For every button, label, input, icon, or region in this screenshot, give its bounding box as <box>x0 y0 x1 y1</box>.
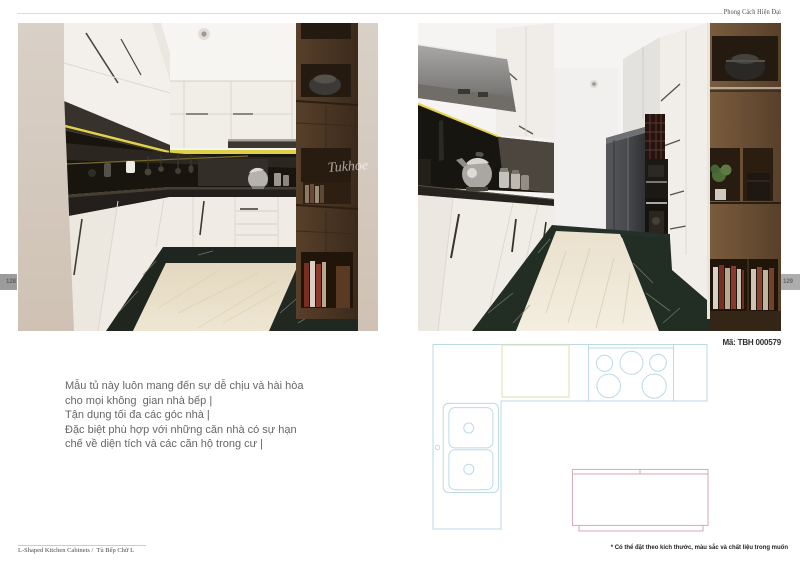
svg-text:Tukhoe: Tukhoe <box>327 158 368 176</box>
